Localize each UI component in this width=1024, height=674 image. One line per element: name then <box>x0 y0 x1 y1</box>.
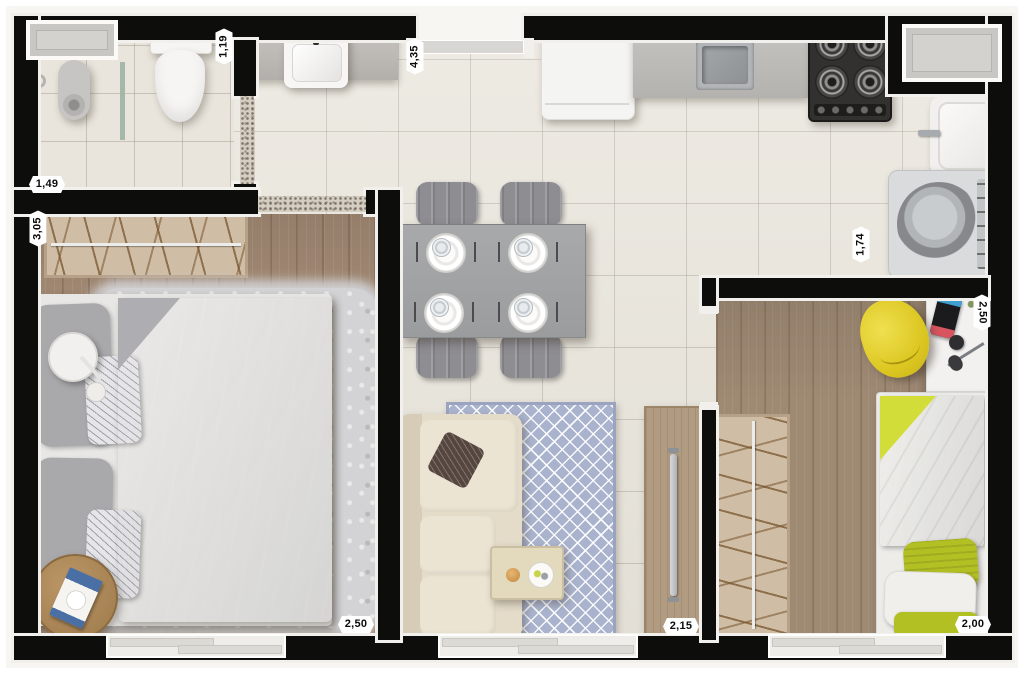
floor-plan: 1,49 1,19 4,35 3,05 2,50 1,74 2,50 2,15 … <box>0 0 1024 674</box>
knife-icon <box>474 242 476 262</box>
fridge-door-seam <box>545 103 629 105</box>
dim-bedroom2-width: 2,00 <box>955 616 991 633</box>
fork-icon <box>498 242 500 262</box>
wall-left <box>14 16 38 660</box>
tv-panel <box>644 406 702 640</box>
window-pane <box>839 645 942 654</box>
sink-basin <box>702 46 748 84</box>
window-pane <box>178 645 282 654</box>
window-glass <box>912 34 992 72</box>
dim-bedroom1-depth: 3,05 <box>30 211 47 247</box>
floor-lamp <box>48 332 98 382</box>
entry-door-leaf <box>416 40 524 54</box>
bed1-blanket <box>118 298 332 622</box>
knife-icon <box>472 302 474 322</box>
knife-icon <box>556 242 558 262</box>
wall-right <box>988 16 1012 660</box>
wall-service-bedroom2 <box>702 278 988 298</box>
living-window <box>438 634 638 658</box>
wall-bedroom1-right <box>378 190 400 640</box>
bedroom2-window <box>768 634 946 658</box>
wall-bathroom-right-upper <box>234 40 256 96</box>
chair-seam <box>875 332 923 370</box>
game-console <box>929 293 962 340</box>
dim-bathroom-width: 1,49 <box>29 176 65 193</box>
dining-chair <box>416 182 478 226</box>
kitchen-window <box>902 24 1002 82</box>
cooktop-controls <box>814 104 886 116</box>
dining-chair <box>500 182 562 226</box>
fork-icon <box>414 302 416 322</box>
window-pane <box>518 645 634 654</box>
entry-door-jamb <box>524 38 534 58</box>
burner <box>853 65 887 99</box>
tv-bracket <box>668 448 679 453</box>
dim-bedroom1-width: 2,50 <box>338 616 374 633</box>
sofa-seat-cushion <box>420 516 496 574</box>
bathroom-window <box>26 20 118 60</box>
drinking-glass <box>514 298 533 317</box>
kitchen-sink <box>696 40 754 90</box>
bedroom1-wardrobe <box>44 212 248 278</box>
tub-basin <box>938 102 994 170</box>
fork-icon <box>416 242 418 262</box>
wardrobe-rod <box>51 243 241 246</box>
sofa-seat-cushion <box>420 576 496 636</box>
dim-living-width: 2,15 <box>663 618 699 635</box>
coffee-table <box>490 546 564 600</box>
dim-service-width: 1,74 <box>853 227 870 263</box>
burner <box>815 65 849 99</box>
place-setting <box>412 290 484 336</box>
dining-chair <box>500 334 562 378</box>
place-setting <box>496 290 568 336</box>
knife-icon <box>556 302 558 322</box>
bedroom1-window <box>106 634 286 658</box>
drinking-glass <box>514 238 533 257</box>
refrigerator <box>541 26 635 120</box>
shower <box>58 60 90 120</box>
washing-machine <box>888 170 998 278</box>
window-glass <box>36 30 108 50</box>
wall-bedroom2-left-lower <box>702 408 716 640</box>
glass-partition <box>120 62 125 140</box>
bedroom1-door-threshold <box>258 196 366 212</box>
bathroom-door-threshold <box>240 96 254 184</box>
magazine-circle <box>63 587 89 613</box>
wall-bedroom1-top-left <box>14 190 258 214</box>
drinking-glass <box>430 298 449 317</box>
dim-bathroom-depth: 1,19 <box>216 29 233 65</box>
desk-gadget <box>949 335 964 350</box>
drinking-glass <box>432 238 451 257</box>
tub-faucet <box>918 130 940 136</box>
place-setting <box>496 230 568 276</box>
tv-screen-topview <box>670 454 677 596</box>
bedroom2-door-jamb <box>700 402 718 410</box>
bread-roll <box>506 568 520 582</box>
dining-chair <box>416 334 478 378</box>
washer-drum <box>897 182 981 266</box>
sofa <box>398 414 522 640</box>
bedroom2-wardrobe <box>716 414 790 636</box>
floor-lamp-head <box>86 382 106 402</box>
dim-hall-kitchen-length: 4,35 <box>407 39 424 75</box>
dim-bedroom2-depth: 2,50 <box>974 295 991 331</box>
sofa-backrest <box>398 414 422 640</box>
bedroom2-door-jamb <box>700 306 718 314</box>
wall-top-middle <box>524 16 893 40</box>
place-setting <box>414 230 486 276</box>
shower-head <box>63 94 85 116</box>
magazine <box>49 567 103 629</box>
snack-plate <box>528 562 554 588</box>
basin-bowl <box>292 44 342 82</box>
wardrobe-rod <box>752 421 755 629</box>
tv-bracket <box>668 597 679 602</box>
round-side-table <box>32 554 118 640</box>
fork-icon <box>498 302 500 322</box>
